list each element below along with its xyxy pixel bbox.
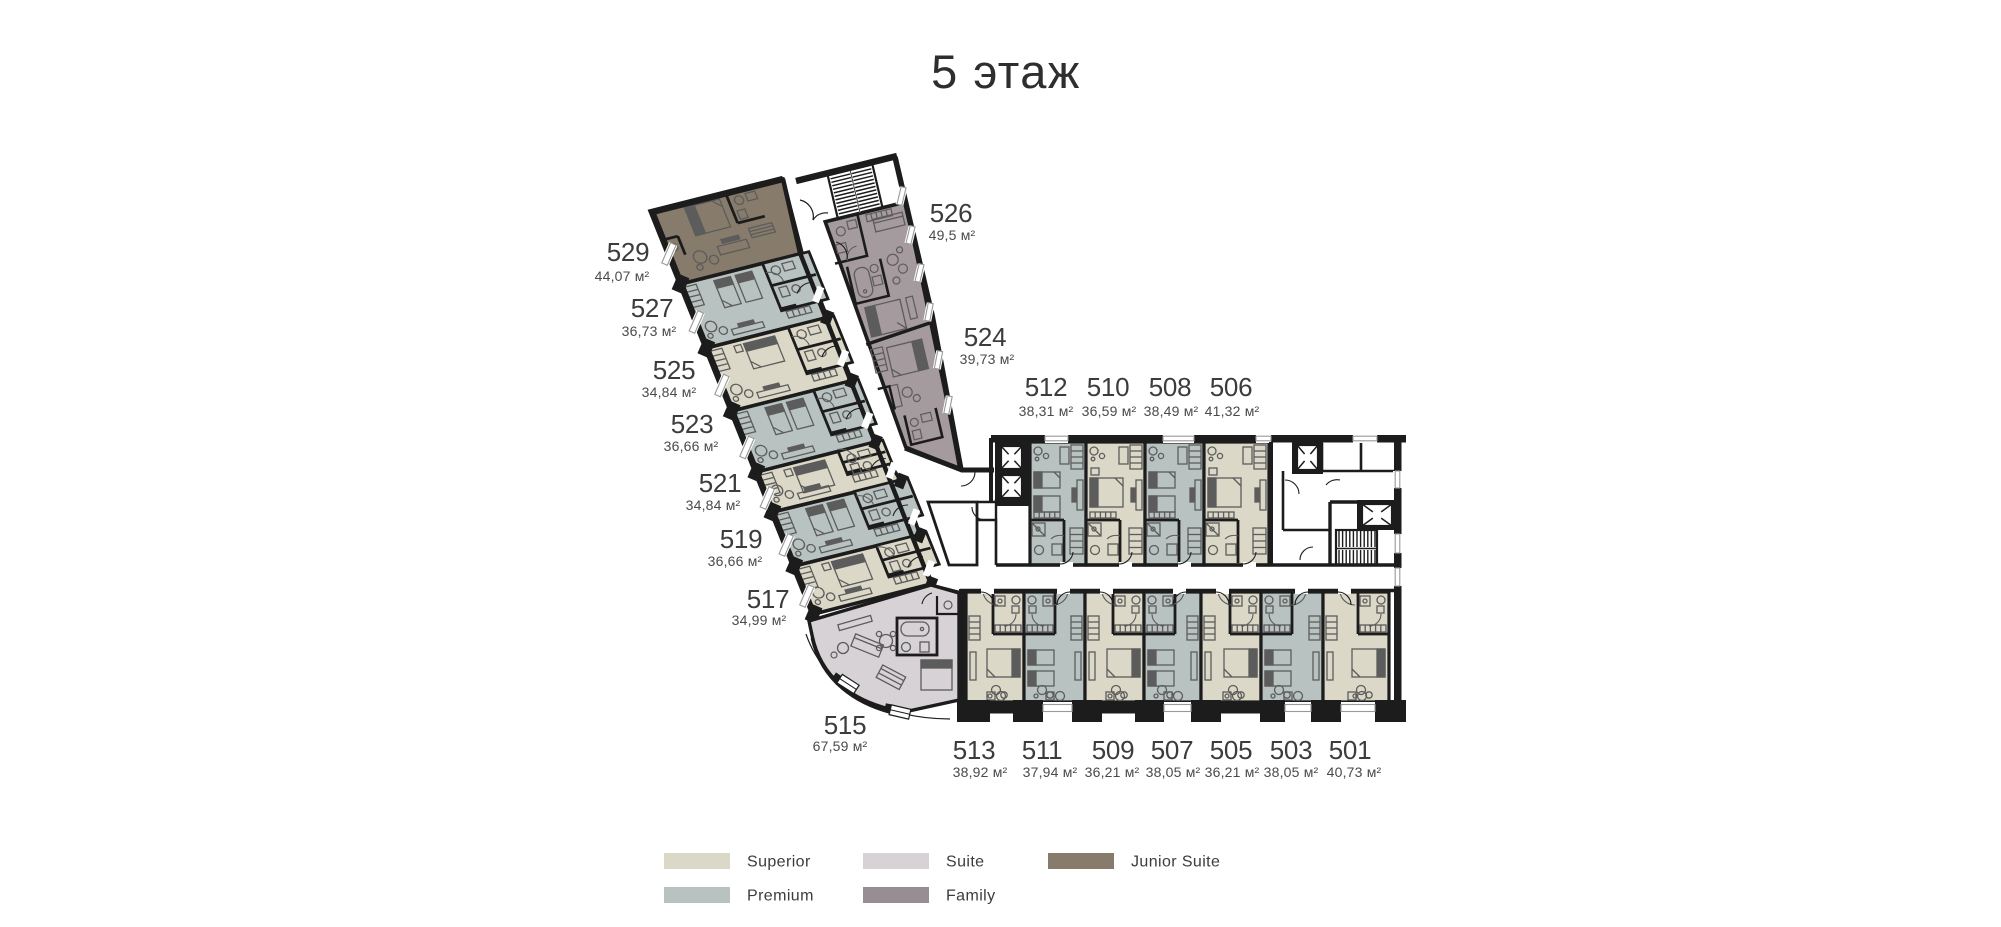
svg-text:503: 503 <box>1270 735 1312 765</box>
svg-text:508: 508 <box>1149 372 1191 402</box>
svg-text:521: 521 <box>699 468 741 498</box>
svg-text:36,73 м²: 36,73 м² <box>622 323 677 339</box>
svg-text:67,59 м²: 67,59 м² <box>813 738 868 754</box>
svg-text:38,49 м²: 38,49 м² <box>1144 403 1199 419</box>
svg-text:36,21 м²: 36,21 м² <box>1085 764 1140 780</box>
svg-text:525: 525 <box>653 355 695 385</box>
svg-text:36,59 м²: 36,59 м² <box>1082 403 1137 419</box>
svg-text:515: 515 <box>824 710 866 740</box>
svg-text:510: 510 <box>1087 372 1129 402</box>
svg-text:37,94 м²: 37,94 м² <box>1023 764 1078 780</box>
svg-text:506: 506 <box>1210 372 1252 402</box>
svg-text:507: 507 <box>1151 735 1193 765</box>
svg-text:44,07 м²: 44,07 м² <box>595 268 650 284</box>
svg-text:38,05 м²: 38,05 м² <box>1146 764 1201 780</box>
svg-text:512: 512 <box>1025 372 1067 402</box>
svg-text:34,99 м²: 34,99 м² <box>732 612 787 628</box>
svg-text:Suite: Suite <box>946 854 984 871</box>
svg-text:34,84 м²: 34,84 м² <box>686 497 741 513</box>
svg-text:39,73 м²: 39,73 м² <box>960 351 1015 367</box>
svg-text:38,31 м²: 38,31 м² <box>1019 403 1074 419</box>
svg-text:524: 524 <box>964 322 1006 352</box>
svg-text:Premium: Premium <box>747 888 814 905</box>
svg-text:527: 527 <box>631 293 673 323</box>
svg-text:513: 513 <box>953 735 995 765</box>
svg-text:519: 519 <box>720 524 762 554</box>
svg-text:38,05 м²: 38,05 м² <box>1264 764 1319 780</box>
svg-text:36,21 м²: 36,21 м² <box>1205 764 1260 780</box>
svg-text:38,92 м²: 38,92 м² <box>953 764 1008 780</box>
svg-text:41,32 м²: 41,32 м² <box>1205 403 1260 419</box>
svg-text:501: 501 <box>1329 735 1371 765</box>
svg-text:36,66 м²: 36,66 м² <box>664 438 719 454</box>
svg-text:529: 529 <box>607 237 649 267</box>
svg-text:Superior: Superior <box>747 854 811 871</box>
svg-text:Family: Family <box>946 888 996 905</box>
svg-text:36,66 м²: 36,66 м² <box>708 553 763 569</box>
svg-text:505: 505 <box>1210 735 1252 765</box>
svg-text:34,84 м²: 34,84 м² <box>642 384 697 400</box>
svg-text:517: 517 <box>747 584 789 614</box>
svg-text:Junior Suite: Junior Suite <box>1131 854 1220 871</box>
svg-text:40,73 м²: 40,73 м² <box>1327 764 1382 780</box>
svg-text:526: 526 <box>930 198 972 228</box>
svg-text:5 этаж: 5 этаж <box>931 45 1081 98</box>
svg-text:511: 511 <box>1022 735 1063 765</box>
svg-text:49,5 м²: 49,5 м² <box>929 227 976 243</box>
svg-text:509: 509 <box>1092 735 1134 765</box>
svg-text:523: 523 <box>671 409 713 439</box>
